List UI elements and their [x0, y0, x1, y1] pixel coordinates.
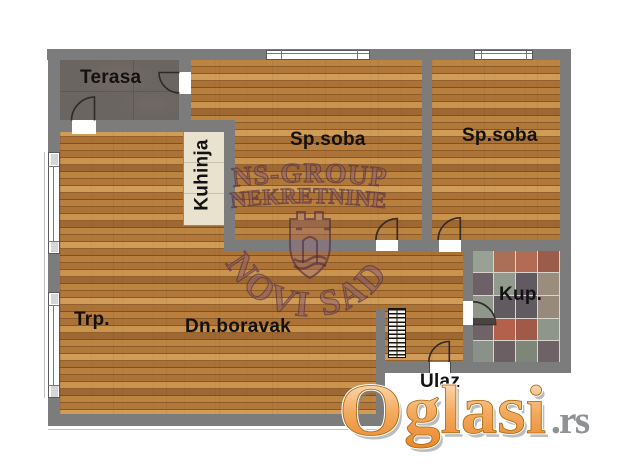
svg-text:O: O [339, 370, 403, 452]
svg-text:glasi: glasi [404, 372, 546, 448]
svg-text:.rs: .rs [551, 399, 590, 442]
